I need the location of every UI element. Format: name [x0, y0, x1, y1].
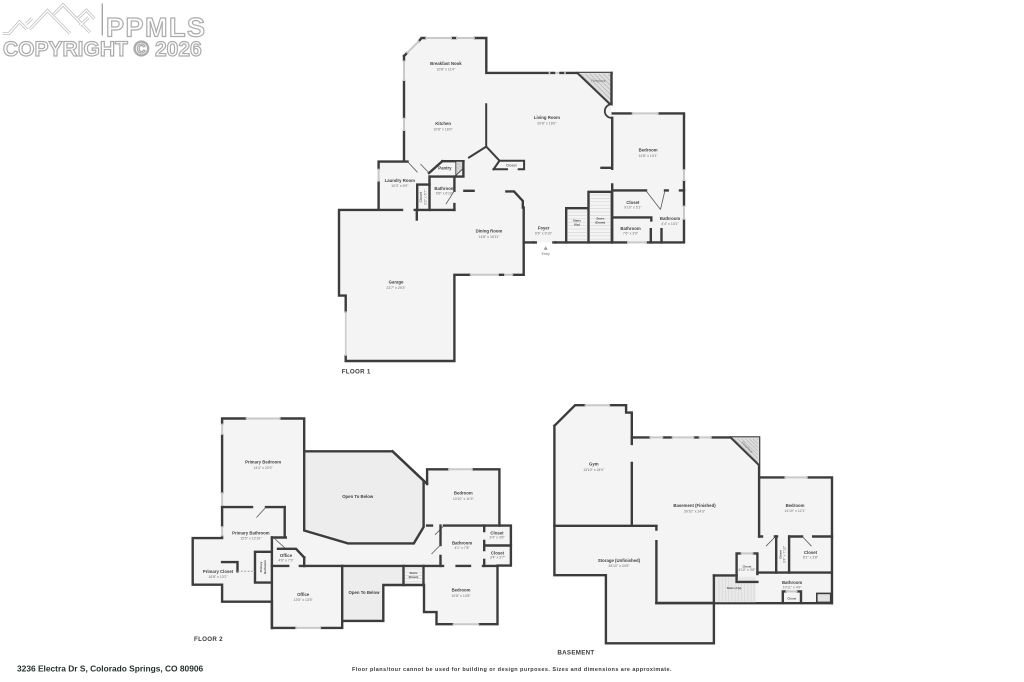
svg-text:13'5" x 13'5": 13'5" x 13'5"	[294, 598, 314, 602]
svg-text:2'2" x 6'7": 2'2" x 6'7"	[423, 189, 427, 205]
svg-text:Pantry: Pantry	[438, 166, 452, 171]
svg-text:Kitchen: Kitchen	[435, 121, 451, 126]
svg-text:10'3" x 5'9": 10'3" x 5'9"	[391, 184, 409, 188]
svg-text:COPYRIGHT © 2026: COPYRIGHT © 2026	[3, 38, 202, 61]
svg-text:Storage (Unfinished): Storage (Unfinished)	[598, 558, 641, 563]
svg-text:Closet: Closet	[491, 550, 505, 555]
svg-text:15'5" x 12'10": 15'5" x 12'10"	[240, 537, 262, 541]
svg-text:FLOOR 2: FLOOR 2	[194, 636, 223, 643]
svg-text:Closet: Closet	[804, 550, 818, 555]
svg-text:Primary Closet: Primary Closet	[203, 569, 234, 574]
svg-text:Gym: Gym	[589, 461, 599, 466]
svg-text:Garage: Garage	[389, 279, 404, 284]
svg-text:Primary Bedroom: Primary Bedroom	[245, 459, 281, 464]
svg-text:3236 Electra Dr S, Colorado Sp: 3236 Electra Dr S, Colorado Springs, CO …	[17, 664, 204, 674]
svg-text:10'8" x 11'4": 10'8" x 11'4"	[436, 67, 456, 71]
svg-text:Bedroom: Bedroom	[454, 490, 473, 495]
svg-text:3'4" x 3'7": 3'4" x 3'7"	[490, 556, 506, 560]
svg-text:BASEMENT: BASEMENT	[557, 650, 594, 657]
svg-text:13'10" x 24'0": 13'10" x 24'0"	[583, 468, 605, 472]
svg-text:Closet: Closet	[787, 596, 796, 600]
svg-text:Office: Office	[280, 553, 293, 558]
svg-text:14'4" x 20'3": 14'4" x 20'3"	[253, 466, 273, 470]
svg-text:16'8" x 13'2": 16'8" x 13'2"	[208, 575, 228, 579]
svg-text:10'10" x 11'9": 10'10" x 11'9"	[453, 497, 475, 501]
svg-text:Closet: Closet	[490, 530, 504, 535]
svg-text:14'10" x 12'1": 14'10" x 12'1"	[784, 509, 806, 513]
svg-text:4'10" x 3'8": 4'10" x 3'8"	[738, 568, 756, 572]
svg-text:Entry: Entry	[542, 252, 550, 256]
svg-text:20'8" x 16'0": 20'8" x 16'0"	[537, 121, 557, 125]
svg-text:Bathroom: Bathroom	[620, 226, 640, 231]
svg-text:Bathroom: Bathroom	[263, 560, 267, 574]
svg-text:7'6" x 3'9": 7'6" x 3'9"	[623, 232, 639, 236]
svg-text:Breakfast Nook: Breakfast Nook	[430, 61, 462, 66]
svg-text:3'4" x 3'8": 3'4" x 3'8"	[489, 536, 505, 540]
svg-text:4'4" x 10'1": 4'4" x 10'1"	[661, 222, 679, 226]
svg-text:Living Room: Living Room	[534, 115, 560, 120]
svg-text:23'7" x 29'3": 23'7" x 29'3"	[386, 286, 406, 290]
svg-text:Open To Below: Open To Below	[349, 590, 381, 595]
svg-text:39'10" x 24'3": 39'10" x 24'3"	[684, 509, 706, 513]
svg-text:5'8" x 6'10": 5'8" x 6'10"	[436, 192, 454, 196]
svg-text:Bathroom: Bathroom	[452, 540, 472, 545]
svg-text:10'8" x 16'0": 10'8" x 16'0"	[433, 128, 453, 132]
svg-text:8'1" x 3'8": 8'1" x 3'8"	[803, 556, 819, 560]
svg-text:Laundry Room: Laundry Room	[385, 178, 415, 183]
svg-text:10'11" x 4'9": 10'11" x 4'9"	[783, 586, 803, 590]
svg-text:28'10" x 24'5": 28'10" x 24'5"	[608, 564, 630, 568]
svg-text:(Down): (Down)	[595, 221, 605, 225]
svg-text:4'9" x 7'3": 4'9" x 7'3"	[278, 559, 294, 563]
svg-text:Bathroom: Bathroom	[782, 580, 802, 585]
svg-text:Office: Office	[297, 592, 310, 597]
svg-text:Floor plans/tour cannot be use: Floor plans/tour cannot be used for buil…	[352, 667, 672, 673]
svg-text:14'8" x 16'11": 14'8" x 16'11"	[479, 235, 501, 239]
svg-text:FLOOR 1: FLOOR 1	[342, 368, 371, 375]
svg-text:Foyer: Foyer	[538, 225, 550, 230]
svg-text:Closet: Closet	[626, 200, 640, 205]
svg-text:9'10" x 5'1": 9'10" x 5'1"	[624, 206, 642, 210]
svg-text:Stairs (Up): Stairs (Up)	[727, 586, 742, 590]
svg-text:Dining Room: Dining Room	[476, 228, 503, 233]
svg-text:14'8" x 10'1": 14'8" x 10'1"	[638, 154, 658, 158]
svg-text:Bathroom: Bathroom	[660, 216, 680, 221]
svg-text:Bathroom: Bathroom	[434, 186, 454, 191]
svg-text:Closet: Closet	[506, 163, 518, 167]
svg-text:Bedroom: Bedroom	[452, 587, 471, 592]
svg-text:(Down): (Down)	[409, 575, 419, 579]
svg-text:4'1" x 7'8": 4'1" x 7'8"	[454, 546, 470, 550]
svg-text:Primary Bathroom: Primary Bathroom	[232, 531, 270, 536]
svg-text:10'8" x 13'8": 10'8" x 13'8"	[451, 594, 471, 598]
svg-text:6'6" x 9'10": 6'6" x 9'10"	[535, 231, 553, 235]
svg-text:Basement (Finished): Basement (Finished)	[673, 503, 716, 508]
svg-text:Fireplace: Fireplace	[591, 79, 605, 83]
svg-text:3'4" x 7'10": 3'4" x 7'10"	[782, 545, 786, 563]
svg-text:Bedroom: Bedroom	[639, 147, 658, 152]
svg-text:(Up): (Up)	[574, 223, 580, 227]
svg-text:Bedroom: Bedroom	[786, 503, 805, 508]
svg-text:Open To Below: Open To Below	[342, 494, 374, 499]
